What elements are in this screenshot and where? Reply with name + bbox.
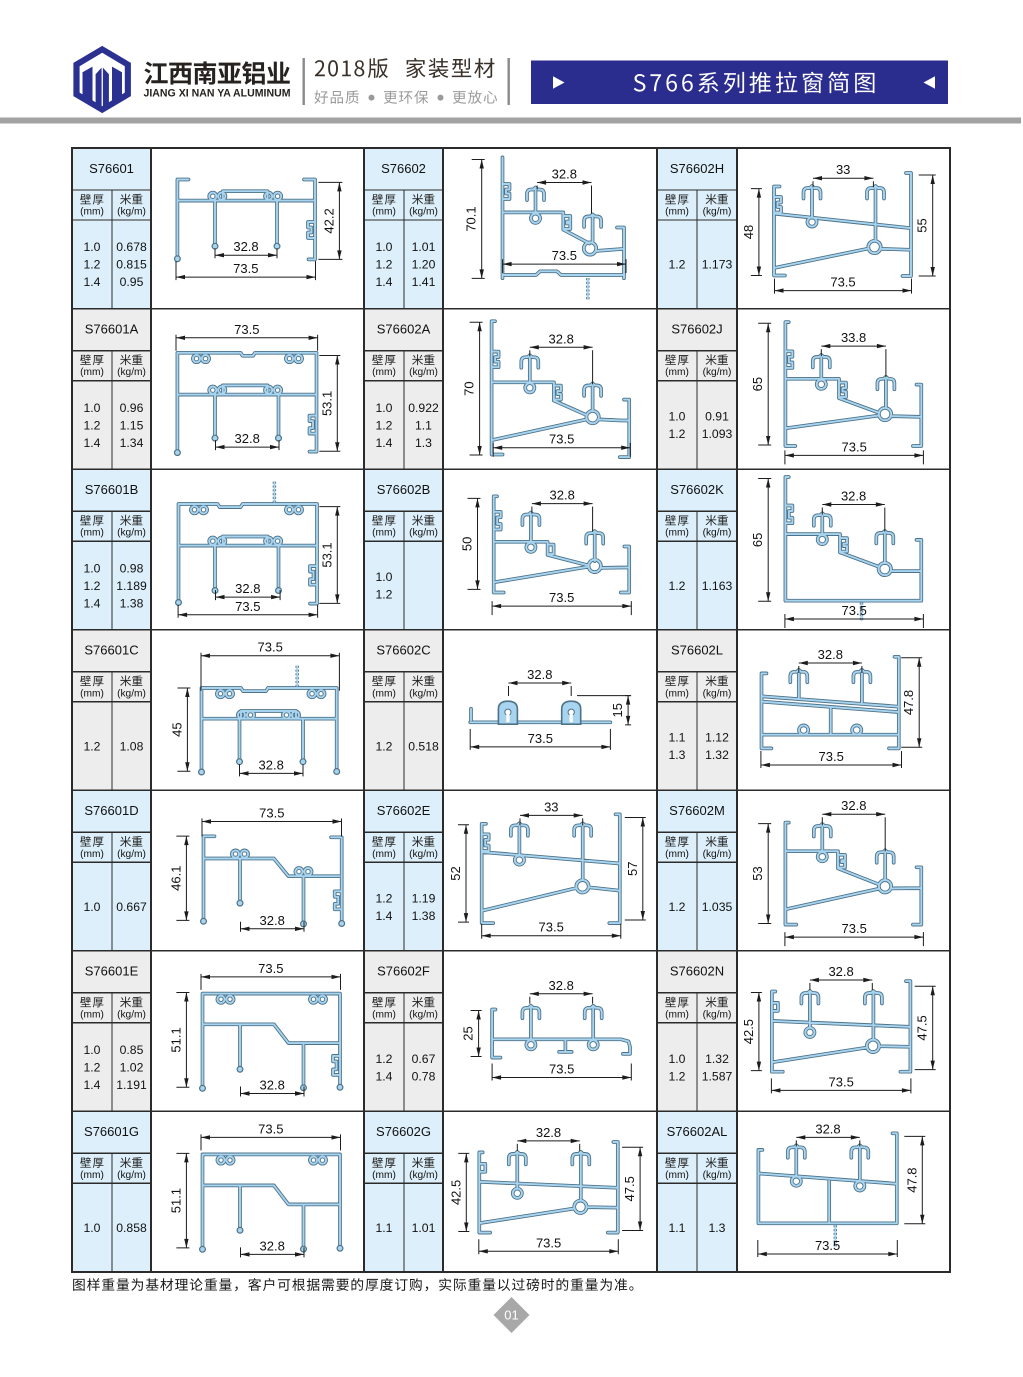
- svg-text:01: 01: [504, 1308, 518, 1323]
- svg-text:1.2: 1.2: [376, 588, 393, 602]
- svg-text:53: 53: [750, 866, 765, 880]
- svg-text:1.34: 1.34: [120, 436, 144, 450]
- svg-text:73.5: 73.5: [528, 731, 553, 746]
- svg-text:S76601B: S76601B: [85, 482, 139, 497]
- svg-text:(kg/m): (kg/m): [409, 1010, 438, 1021]
- svg-text:S76601G: S76601G: [84, 1124, 139, 1139]
- svg-text:JIANG XI NAN YA ALUMINUM: JIANG XI NAN YA ALUMINUM: [144, 88, 291, 100]
- svg-text:32.8: 32.8: [260, 913, 285, 928]
- svg-text:32.8: 32.8: [536, 1125, 561, 1140]
- svg-text:1.0: 1.0: [84, 1043, 101, 1057]
- svg-text:S76602: S76602: [381, 161, 426, 176]
- svg-text:32.8: 32.8: [235, 431, 260, 446]
- svg-text:(kg/m): (kg/m): [117, 849, 146, 860]
- svg-text:53.1: 53.1: [319, 391, 334, 416]
- svg-text:S76601D: S76601D: [84, 803, 138, 818]
- svg-text:(mm): (mm): [665, 688, 689, 699]
- svg-text:32.8: 32.8: [259, 757, 284, 772]
- svg-text:73.5: 73.5: [549, 1062, 574, 1077]
- svg-text:1.20: 1.20: [412, 258, 436, 272]
- svg-text:(kg/m): (kg/m): [703, 528, 732, 539]
- svg-text:S76601A: S76601A: [85, 321, 139, 336]
- svg-text:73.5: 73.5: [234, 322, 259, 337]
- svg-text:(kg/m): (kg/m): [409, 207, 438, 218]
- svg-text:S76602M: S76602M: [669, 803, 725, 818]
- svg-text:1.0: 1.0: [376, 570, 393, 584]
- svg-text:50: 50: [460, 537, 475, 551]
- svg-text:(mm): (mm): [665, 849, 689, 860]
- svg-text:15: 15: [610, 703, 625, 717]
- svg-text:(kg/m): (kg/m): [409, 688, 438, 699]
- svg-text:1.1: 1.1: [415, 418, 432, 432]
- svg-text:1.173: 1.173: [702, 258, 733, 272]
- svg-text:1.2: 1.2: [84, 258, 101, 272]
- svg-text:0.667: 0.667: [116, 900, 147, 914]
- svg-text:1.41: 1.41: [412, 275, 436, 289]
- svg-text:(kg/m): (kg/m): [703, 1010, 732, 1021]
- svg-text:1.0: 1.0: [669, 410, 686, 424]
- svg-text:73.5: 73.5: [258, 961, 283, 976]
- svg-text:42.5: 42.5: [448, 1180, 463, 1205]
- svg-text:33: 33: [544, 799, 558, 814]
- svg-text:1.4: 1.4: [84, 436, 101, 450]
- svg-text:1.38: 1.38: [412, 909, 436, 923]
- svg-text:1.0: 1.0: [84, 240, 101, 254]
- svg-text:73.5: 73.5: [258, 640, 283, 655]
- svg-text:53.1: 53.1: [319, 542, 334, 567]
- svg-text:48: 48: [741, 225, 756, 239]
- svg-text:1.035: 1.035: [702, 900, 733, 914]
- svg-text:(kg/m): (kg/m): [117, 367, 146, 378]
- svg-text:1.2: 1.2: [376, 1052, 393, 1066]
- svg-text:73.5: 73.5: [235, 599, 260, 614]
- svg-text:(mm): (mm): [372, 849, 396, 860]
- svg-text:S76602C: S76602C: [376, 643, 430, 658]
- svg-text:55: 55: [915, 218, 930, 232]
- svg-text:1.2: 1.2: [84, 740, 101, 754]
- svg-text:1.0: 1.0: [669, 1052, 686, 1066]
- svg-text:S76602K: S76602K: [670, 482, 724, 497]
- svg-text:S76602L: S76602L: [671, 643, 723, 658]
- svg-text:0.78: 0.78: [412, 1069, 436, 1083]
- svg-text:0.85: 0.85: [120, 1043, 144, 1057]
- svg-text:1.12: 1.12: [705, 731, 729, 745]
- svg-text:1.4: 1.4: [376, 1069, 393, 1083]
- svg-text:1.093: 1.093: [702, 427, 733, 441]
- svg-text:1.2: 1.2: [669, 427, 686, 441]
- svg-text:32.8: 32.8: [828, 964, 853, 979]
- svg-text:0.922: 0.922: [408, 401, 439, 415]
- svg-text:1.0: 1.0: [376, 401, 393, 415]
- svg-text:1.4: 1.4: [84, 1078, 101, 1092]
- svg-text:1.2: 1.2: [84, 418, 101, 432]
- svg-text:32.8: 32.8: [549, 978, 574, 993]
- svg-text:1.189: 1.189: [116, 579, 147, 593]
- svg-text:70: 70: [462, 381, 477, 395]
- svg-text:(mm): (mm): [80, 1170, 104, 1181]
- svg-text:0.815: 0.815: [116, 258, 147, 272]
- svg-text:(kg/m): (kg/m): [117, 1010, 146, 1021]
- svg-text:(mm): (mm): [372, 367, 396, 378]
- svg-text:S76602B: S76602B: [377, 482, 431, 497]
- svg-text:1.2: 1.2: [669, 1069, 686, 1083]
- svg-text:0.95: 0.95: [120, 275, 144, 289]
- svg-text:73.5: 73.5: [829, 1074, 854, 1089]
- svg-text:42.5: 42.5: [741, 1019, 756, 1044]
- svg-text:1.4: 1.4: [84, 275, 101, 289]
- svg-text:S76601: S76601: [89, 161, 134, 176]
- svg-text:0.858: 0.858: [116, 1221, 147, 1235]
- svg-text:47.5: 47.5: [622, 1176, 637, 1201]
- svg-text:(kg/m): (kg/m): [409, 1170, 438, 1181]
- svg-text:(mm): (mm): [665, 1010, 689, 1021]
- svg-text:1.2: 1.2: [84, 1061, 101, 1075]
- svg-text:1.4: 1.4: [376, 275, 393, 289]
- svg-text:32.8: 32.8: [552, 167, 577, 182]
- svg-text:1.32: 1.32: [705, 1052, 729, 1066]
- svg-text:1.0: 1.0: [376, 240, 393, 254]
- svg-text:1.02: 1.02: [120, 1061, 144, 1075]
- svg-text:32.8: 32.8: [527, 667, 552, 682]
- svg-text:1.4: 1.4: [84, 596, 101, 610]
- svg-text:1.2: 1.2: [669, 900, 686, 914]
- svg-text:1.2: 1.2: [376, 891, 393, 905]
- svg-text:47.8: 47.8: [904, 1167, 919, 1192]
- svg-text:32.8: 32.8: [818, 647, 843, 662]
- svg-text:(mm): (mm): [372, 1170, 396, 1181]
- svg-text:(kg/m): (kg/m): [117, 1170, 146, 1181]
- svg-text:1.2: 1.2: [376, 740, 393, 754]
- svg-text:1.2: 1.2: [84, 579, 101, 593]
- svg-text:73.5: 73.5: [842, 603, 867, 618]
- svg-text:(mm): (mm): [665, 528, 689, 539]
- svg-text:(mm): (mm): [665, 1170, 689, 1181]
- svg-text:73.5: 73.5: [549, 432, 574, 447]
- svg-text:(mm): (mm): [372, 688, 396, 699]
- svg-text:(mm): (mm): [80, 528, 104, 539]
- svg-text:32.8: 32.8: [260, 1238, 285, 1253]
- svg-text:32.8: 32.8: [235, 581, 260, 596]
- svg-text:65: 65: [750, 533, 765, 547]
- svg-text:0.91: 0.91: [705, 410, 729, 424]
- svg-text:S76601E: S76601E: [85, 964, 139, 979]
- svg-text:42.2: 42.2: [321, 208, 336, 233]
- svg-text:(kg/m): (kg/m): [703, 207, 732, 218]
- svg-text:32.8: 32.8: [815, 1121, 840, 1136]
- svg-text:73.5: 73.5: [819, 749, 844, 764]
- svg-text:47.8: 47.8: [901, 690, 916, 715]
- svg-text:1.3: 1.3: [709, 1221, 726, 1235]
- svg-text:65: 65: [750, 377, 765, 391]
- svg-text:1.3: 1.3: [669, 748, 686, 762]
- svg-text:32.8: 32.8: [841, 798, 866, 813]
- svg-text:73.5: 73.5: [552, 248, 577, 263]
- svg-text:(kg/m): (kg/m): [117, 688, 146, 699]
- svg-text:1.2: 1.2: [669, 579, 686, 593]
- svg-text:1.08: 1.08: [120, 740, 144, 754]
- svg-text:0.67: 0.67: [412, 1052, 436, 1066]
- svg-text:51.1: 51.1: [168, 1188, 183, 1213]
- svg-text:(mm): (mm): [372, 207, 396, 218]
- svg-text:1.15: 1.15: [120, 418, 144, 432]
- svg-text:1.01: 1.01: [412, 1221, 436, 1235]
- svg-text:1.3: 1.3: [415, 436, 432, 450]
- svg-text:0.678: 0.678: [116, 240, 147, 254]
- svg-text:1.587: 1.587: [702, 1069, 733, 1083]
- svg-text:1.01: 1.01: [412, 240, 436, 254]
- svg-text:(mm): (mm): [80, 367, 104, 378]
- svg-text:1.1: 1.1: [669, 731, 686, 745]
- svg-text:S76602G: S76602G: [376, 1124, 431, 1139]
- svg-text:(mm): (mm): [80, 1010, 104, 1021]
- svg-text:73.5: 73.5: [539, 920, 564, 935]
- svg-text:1.0: 1.0: [84, 401, 101, 415]
- svg-text:1.4: 1.4: [376, 436, 393, 450]
- svg-text:S76602AL: S76602AL: [667, 1124, 728, 1139]
- svg-text:(kg/m): (kg/m): [703, 367, 732, 378]
- svg-text:(kg/m): (kg/m): [703, 849, 732, 860]
- svg-text:1.4: 1.4: [376, 909, 393, 923]
- svg-text:1.0: 1.0: [84, 1221, 101, 1235]
- svg-text:(mm): (mm): [665, 367, 689, 378]
- svg-text:(mm): (mm): [80, 207, 104, 218]
- svg-text:(kg/m): (kg/m): [703, 1170, 732, 1181]
- svg-text:32.8: 32.8: [550, 488, 575, 503]
- svg-text:S76602F: S76602F: [377, 964, 430, 979]
- svg-text:46.1: 46.1: [168, 866, 183, 891]
- svg-text:1.1: 1.1: [376, 1221, 393, 1235]
- svg-text:73.5: 73.5: [549, 590, 574, 605]
- svg-text:1.2: 1.2: [376, 258, 393, 272]
- svg-text:1.2: 1.2: [376, 418, 393, 432]
- svg-text:73.5: 73.5: [830, 275, 855, 290]
- svg-text:1.32: 1.32: [705, 748, 729, 762]
- svg-text:(mm): (mm): [80, 849, 104, 860]
- svg-text:(kg/m): (kg/m): [409, 849, 438, 860]
- svg-text:1.2: 1.2: [669, 258, 686, 272]
- svg-text:(kg/m): (kg/m): [117, 207, 146, 218]
- svg-text:0.98: 0.98: [120, 561, 144, 575]
- svg-text:33.8: 33.8: [841, 330, 866, 345]
- svg-text:S76602J: S76602J: [671, 321, 722, 336]
- svg-text:57: 57: [625, 861, 640, 875]
- svg-text:1.191: 1.191: [116, 1078, 147, 1092]
- svg-text:(kg/m): (kg/m): [409, 367, 438, 378]
- svg-text:S76602E: S76602E: [377, 803, 431, 818]
- svg-text:S76602N: S76602N: [670, 964, 724, 979]
- svg-text:73.5: 73.5: [233, 261, 258, 276]
- svg-text:73.5: 73.5: [259, 806, 284, 821]
- svg-text:1.163: 1.163: [702, 579, 733, 593]
- svg-text:73.5: 73.5: [842, 921, 867, 936]
- svg-text:(mm): (mm): [665, 207, 689, 218]
- svg-text:(mm): (mm): [372, 1010, 396, 1021]
- svg-text:1.19: 1.19: [412, 891, 436, 905]
- svg-text:1.1: 1.1: [669, 1221, 686, 1235]
- svg-text:73.5: 73.5: [258, 1121, 283, 1136]
- svg-text:(kg/m): (kg/m): [409, 528, 438, 539]
- svg-text:32.8: 32.8: [549, 331, 574, 346]
- svg-text:51.1: 51.1: [168, 1027, 183, 1052]
- svg-text:(kg/m): (kg/m): [703, 688, 732, 699]
- svg-text:0.518: 0.518: [408, 740, 439, 754]
- svg-text:73.5: 73.5: [815, 1238, 840, 1253]
- svg-text:32.8: 32.8: [233, 239, 258, 254]
- svg-text:33: 33: [836, 162, 850, 177]
- svg-text:45: 45: [169, 722, 184, 736]
- svg-text:(kg/m): (kg/m): [117, 528, 146, 539]
- svg-text:32.8: 32.8: [841, 489, 866, 504]
- svg-text:(mm): (mm): [372, 528, 396, 539]
- svg-text:0.96: 0.96: [120, 401, 144, 415]
- svg-text:(mm): (mm): [80, 688, 104, 699]
- svg-text:52: 52: [448, 866, 463, 880]
- svg-text:32.8: 32.8: [260, 1078, 285, 1093]
- svg-text:S76602H: S76602H: [670, 161, 724, 176]
- svg-text:25: 25: [461, 1026, 476, 1040]
- svg-text:1.38: 1.38: [120, 596, 144, 610]
- svg-text:73.5: 73.5: [536, 1235, 561, 1250]
- svg-text:70.1: 70.1: [464, 206, 479, 231]
- svg-text:47.5: 47.5: [915, 1015, 930, 1040]
- svg-text:1.0: 1.0: [84, 561, 101, 575]
- svg-text:S76602A: S76602A: [377, 321, 431, 336]
- svg-text:73.5: 73.5: [842, 439, 867, 454]
- svg-text:S76601C: S76601C: [84, 643, 138, 658]
- svg-text:1.0: 1.0: [84, 900, 101, 914]
